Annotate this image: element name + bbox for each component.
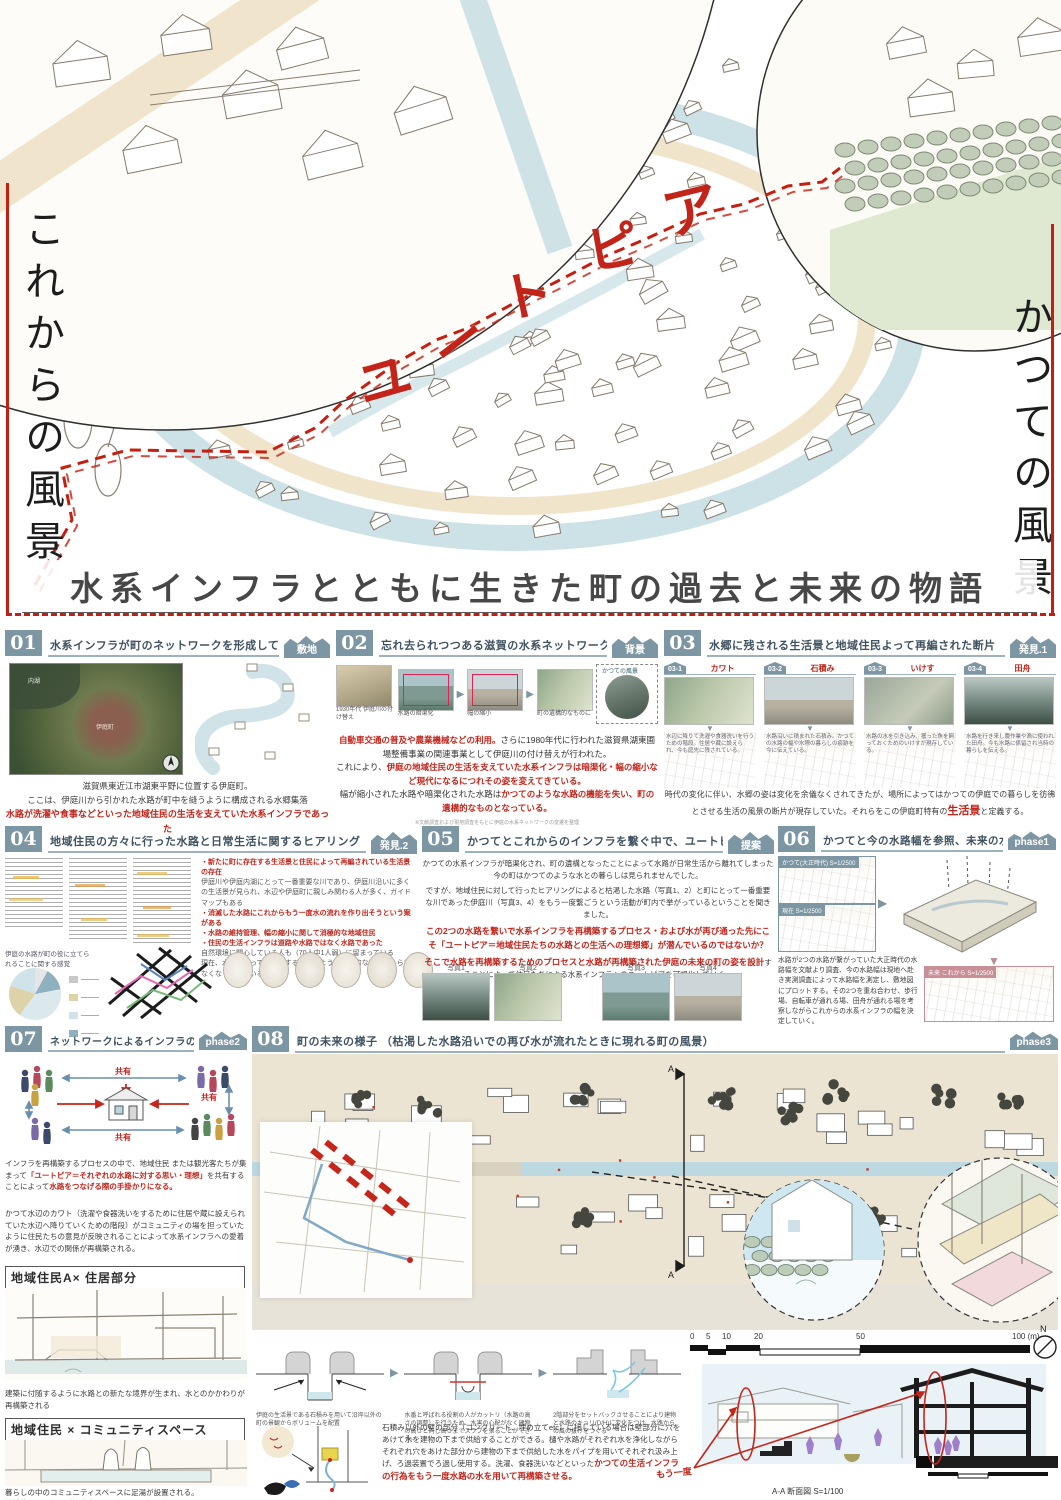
section-02-background: 02 忘れ去られつつある滋賀の水系ネットワーク 背景 1930年代 伊庭川の付け… <box>336 630 658 822</box>
section-02-number: 02 <box>336 630 373 656</box>
arrow-right-icon: ▶ <box>457 689 465 700</box>
presentation-poster: ユ ー ト ピ ア これからの風景 かつての風景 水系インフラとともに生きた町の… <box>0 0 1061 1500</box>
reconnection-red-dashes <box>312 1142 408 1214</box>
scale-bar: 0 5 10 20 50 100 (m) <box>690 1332 1050 1362</box>
annotation-once-more: もう一度 <box>655 1464 692 1481</box>
scale-tick: 5 <box>706 1332 710 1341</box>
fragment-photo <box>964 677 1054 725</box>
arrow-down-icon: ▼ <box>864 725 956 732</box>
house-icon <box>105 1088 147 1120</box>
map-future-width: 未来 これから S=1/2500 <box>924 966 1054 1022</box>
section-03-title: 水郷に残される生活景と地域住民よって再編された断片 <box>707 630 1005 657</box>
aa-section-caption: A-A 断面図 S=1/100 <box>772 1486 843 1497</box>
site-model-3d <box>892 852 1042 956</box>
photo-narrowed <box>467 669 523 711</box>
section-marker-a-bottom: A <box>668 1270 674 1280</box>
section-06-title: かつてと今の水路幅を参照、未来の水路幅を決定 <box>821 826 1003 852</box>
interview-notes <box>5 858 191 946</box>
section-02-paragraph-3: 幅が縮小された水路や暗渠化された水路はかつてのような水路の機能を失い、町の遺構的… <box>336 788 658 815</box>
diagram-stone-volume: 伊庭の生活景である石積みを用いて沿岸以外の町の景観からボリュームを配置 <box>256 1346 384 1429</box>
arrow-down-icon: ▼ <box>764 725 856 732</box>
section-01-site: 01 水系インフラが町のネットワークを形成していた町 敷地 内湖 伊庭町 滋賀県… <box>5 630 330 822</box>
section-05-title: かつてとこれからのインフラを繋ぐ中で、ユートピアを獲得 <box>465 826 723 853</box>
arrow-right-icon: ▶ <box>390 1366 398 1379</box>
section-07-number: 07 <box>5 1026 42 1052</box>
poster-frame-bottom-dashed <box>6 613 1055 616</box>
scale-tick: 0 <box>690 1332 694 1341</box>
section-02-paragraph-1: 自動車交通の普及や農業機械などの利用。さらに1980年代に行われた滋賀県湖東圃場… <box>336 734 658 761</box>
section-02-title: 忘れ去られつつある滋賀の水系ネットワーク <box>379 630 607 657</box>
section-07-bottom-1: 暮らしの中のコミュニティスペースに足湯が設置される。 <box>5 1488 247 1499</box>
section-08-tag: phase3 <box>1010 1030 1058 1050</box>
photo-caption-1: 1930年代 伊庭川の付け替え <box>336 707 395 723</box>
map-label: かつて(大正時代) S=1/2500 <box>779 857 859 868</box>
photo-2 <box>494 973 562 1021</box>
section-07-tag: phase2 <box>199 1030 247 1050</box>
main-title-band: 水系インフラとともに生きた町の過去と未来の物語 <box>22 560 1037 613</box>
poster-frame-right <box>1051 224 1054 615</box>
section-04-tag: 発見.2 <box>371 830 417 854</box>
fragment-label: いけす <box>911 663 935 674</box>
house-kawato-sketch <box>5 1288 247 1380</box>
section-03-tag: 発見.1 <box>1010 634 1056 658</box>
bullet-3: ・消滅した水路にこれからもう一度水の流れを作り出そうという案がある <box>201 909 417 929</box>
photo-relic <box>537 669 593 711</box>
section-05-paragraph-2: ですが、地域住民に対して行ったヒアリングによると枯渇した水路（写真1、2）と町に… <box>422 885 774 920</box>
section-05-proposal: 05 かつてとこれからのインフラを繋ぐ中で、ユートピアを獲得 提案 かつての水系… <box>422 826 774 1022</box>
fragment-label: カワト <box>711 663 735 674</box>
section-02-paragraph-2: これにより、伊庭の地域住民の生活を支えていた水系インフラは暗渠化・幅の縮小など現… <box>336 761 658 788</box>
photo-label: 写真3 <box>602 964 670 973</box>
section-07-mid-text: 建築に付随するように水路との新たな境界が生まれ、水とのかかわりが再構築される <box>5 1388 247 1411</box>
section-03-summary: 時代の変化に伴い、水郷の姿は変化を余儀なくされてきたが、場所によってはかつての伊… <box>664 788 1056 820</box>
north-label: N <box>1040 1324 1047 1334</box>
resident-face-sketches <box>223 952 433 988</box>
section-08-number: 08 <box>252 1026 289 1052</box>
section-03-discovery1: 03 水郷に残される生活景と地域住民よって再編された断片 発見.1 03-1 カ… <box>664 630 1056 822</box>
fragment-card-stonewall: 03-2 石積み ▼ 水路沿いに積まれた石積み。かつての水路の幅や水際の暮らしの… <box>764 662 856 788</box>
section-06-tag: phase1 <box>1008 830 1056 850</box>
arrow-right-icon: ▶ <box>538 1366 546 1379</box>
fragment-desc: 水路沿いに積まれた石積み。かつての水路の幅や水際の暮らしの痕跡を今に伝えている。 <box>764 732 856 788</box>
fragment-photo <box>764 677 854 725</box>
label-community-space: 地域住民 × コミュニティスペース <box>5 1418 245 1441</box>
section-marker-a-top: A <box>668 1064 674 1074</box>
past-scenery-photo <box>605 675 649 719</box>
arrow-down-icon: ▼ <box>964 725 1056 732</box>
fragment-card-kawato: 03-1 カワト ▼ 水辺に降りて洗濯や食器洗いを行うための階段。住居や蔵に設え… <box>664 662 756 788</box>
section-04-title: 地域住民の方々に行った水路と日常生活に関するヒアリング <box>48 826 366 853</box>
section-07-paragraph-2: かつて水辺のカワト（洗濯や食器洗いをするために住居や蔵に設えられていた水辺へ降り… <box>5 1208 247 1255</box>
section-06-paragraph: 水路が2つの水路が繋がっていた大正時代の水路幅を文献より調査、今の水路幅は現地へ… <box>778 956 920 1027</box>
map-past-width: かつて(大正時代) S=1/2500 <box>778 856 876 904</box>
bullet-5: ・住民の生活インフラは道路や水路ではなく水路であった <box>201 939 417 949</box>
section-05-paragraph-1: かつての水系インフラが暗渠化され、町の遺構となったことによって水路が日常生活から… <box>422 858 774 881</box>
section-08-title: 町の未来の様子 （枯渇した水路沿いでの再び水が流れたときに現れる町の風景） <box>295 1026 1005 1053</box>
fragment-label: 石積み <box>811 663 835 674</box>
vignette-waterside <box>744 1180 884 1320</box>
section-07-paragraph-1: インフラを再構築するプロセスの中で、地域住民 または観光客たちが集まって「ユート… <box>5 1158 247 1193</box>
photo-4 <box>674 973 742 1021</box>
scale-tick: 20 <box>754 1332 763 1341</box>
photo-label: 写真4 <box>674 964 742 973</box>
share-label-top: 共有 <box>115 1066 131 1077</box>
section-06-number: 06 <box>778 826 815 852</box>
section-02-tag: 背景 <box>612 634 658 658</box>
fragment-card-taboat: 03-4 田舟 ▼ 水路を行き来し農作業や漁に使われた田舟。今も水路に係留され当… <box>964 662 1056 788</box>
section-08-paragraph: 石積み以外の壁の部分（コンクリート、埋め立てetc）に接している場合は壁部分に穴… <box>382 1422 684 1484</box>
section-07-phase2: 07 ネットワークによるインフラの再構築 phase2 <box>5 1026 247 1498</box>
fragment-card-ikesu: 03-3 いけす ▼ 水路の水を引き込み、獲った魚を飼っておくためのいけすが現存… <box>864 662 956 788</box>
compass-icon <box>162 754 180 772</box>
fragment-desc: 水路を行き来し農作業や漁に使われた田舟。今も水路に係留され当時の暮らしを伝える。 <box>964 732 1056 788</box>
fragment-id: 03-2 <box>764 662 786 674</box>
water-purification-sketch <box>256 1424 376 1498</box>
section-08-phase3: 08 町の未来の様子 （枯渇した水路沿いでの再び水が流れたときに現れる町の風景）… <box>252 1026 1058 1498</box>
photo-label: 写真1 <box>422 964 490 973</box>
photo-caption-3: 幅の縮小 <box>467 711 523 719</box>
arrow-down-icon: ▼ <box>664 725 756 732</box>
proposal-photos: 写真1 写真2 写真3 写真4 <box>422 964 774 1021</box>
fragment-photo <box>664 677 754 725</box>
river-network-sketch <box>195 660 325 776</box>
waterway-network-map <box>101 944 217 1020</box>
share-label-right: 共有 <box>201 1092 217 1103</box>
pie-chart <box>9 968 61 1020</box>
satellite-label-town: 伊庭町 <box>96 722 114 731</box>
section-04-number: 04 <box>5 826 42 852</box>
photo-1930s-river <box>336 665 392 707</box>
section-06-phase1: 06 かつてと今の水路幅を参照、未来の水路幅を決定 phase1 かつて(大正時… <box>778 826 1056 1022</box>
inset-route-map <box>260 1122 472 1298</box>
photo-3 <box>602 973 670 1021</box>
section-01-number: 01 <box>5 630 42 656</box>
arrow-right-icon: ▶ <box>878 896 887 910</box>
scale-tick: 50 <box>856 1332 865 1341</box>
section-01-caption-2: ここは、伊庭川から引かれた水路が町中を縫うように構成される水郷集落 <box>5 794 330 808</box>
section-05-number: 05 <box>422 826 459 852</box>
fragment-id: 03-1 <box>664 662 686 674</box>
fragment-id: 03-4 <box>964 662 986 674</box>
poster-frame-left <box>6 183 9 615</box>
section-07-title: ネットワークによるインフラの再構築 <box>48 1026 194 1052</box>
section-01-tag: 敷地 <box>284 634 330 658</box>
north-arrow-icon: N <box>1032 1322 1058 1362</box>
section-05-tag: 提案 <box>728 830 774 854</box>
photo-label: 写真2 <box>494 964 562 973</box>
footbath-sketch <box>5 1440 247 1486</box>
label-resident-a-house: 地域住民A× 住居部分 <box>5 1266 245 1289</box>
main-title: 水系インフラとともに生きた町の過去と未来の物語 <box>70 562 989 610</box>
map-current-width: 現在 S=1/2500 <box>778 904 876 952</box>
photo-caption-4: 町の遺構的なものに <box>537 711 593 719</box>
bullet-1: ・新たに町に存在する生活景と住民によって再編されている生活景の存在 <box>201 858 417 878</box>
aa-section-drawing <box>688 1364 1058 1482</box>
satellite-photo: 内湖 伊庭町 <box>9 663 183 775</box>
past-scenery-card: かつての風景 <box>596 664 658 724</box>
map-label: 現在 S=1/2500 <box>779 905 825 916</box>
section-01-title: 水系インフラが町のネットワークを形成していた町 <box>48 630 279 657</box>
section-05-thesis: この2つの水路を繋いで水系インフラを再構築するプロセス・および水が再び通った先に… <box>422 925 774 952</box>
fragment-desc: 水路の水を引き込み、獲った魚を飼っておくためのいけすが現存している。 <box>864 732 956 788</box>
share-label-bottom: 共有 <box>115 1132 131 1143</box>
map-label: 未来 これから S=1/2500 <box>925 967 996 978</box>
left-vertical-title: これからの風景 <box>12 208 70 578</box>
fragment-photo <box>864 677 954 725</box>
scale-tick: 10 <box>722 1332 731 1341</box>
section-03-number: 03 <box>664 630 701 656</box>
fragment-desc: 水辺に降りて洗濯や食器洗いを行うための階段。住居や蔵に設えられ、今も庭先に残され… <box>664 732 756 788</box>
pie-caption: 伊庭の水路が町の役に立てられることに関する感覚 <box>5 948 91 968</box>
section-01-caption-1: 滋賀県東近江市湖東平野に位置する伊庭町。 <box>5 780 330 794</box>
photo-caption-2: 水路の暗渠化 <box>398 711 454 719</box>
photo-1 <box>422 973 490 1021</box>
bullet-2: 伊庭川や伊庭内湖にとって一番重要な川であり、伊庭川沿いに多くの生活景が見られ、水… <box>201 878 417 908</box>
fragment-id: 03-3 <box>864 662 886 674</box>
fragment-label: 田舟 <box>1015 663 1031 674</box>
section-04-hearing: 04 地域住民の方々に行った水路と日常生活に関するヒアリング 発見.2 ・新たに… <box>5 826 417 1022</box>
bullet-4: ・水路の維持管理、幅の縮小に関して消極的な地域住民 <box>201 929 417 939</box>
photo-culvert <box>398 669 454 711</box>
past-scenery-label: かつての風景 <box>602 666 638 675</box>
satellite-label-lake: 内湖 <box>28 676 40 685</box>
arrow-right-icon: ▶ <box>526 689 534 700</box>
